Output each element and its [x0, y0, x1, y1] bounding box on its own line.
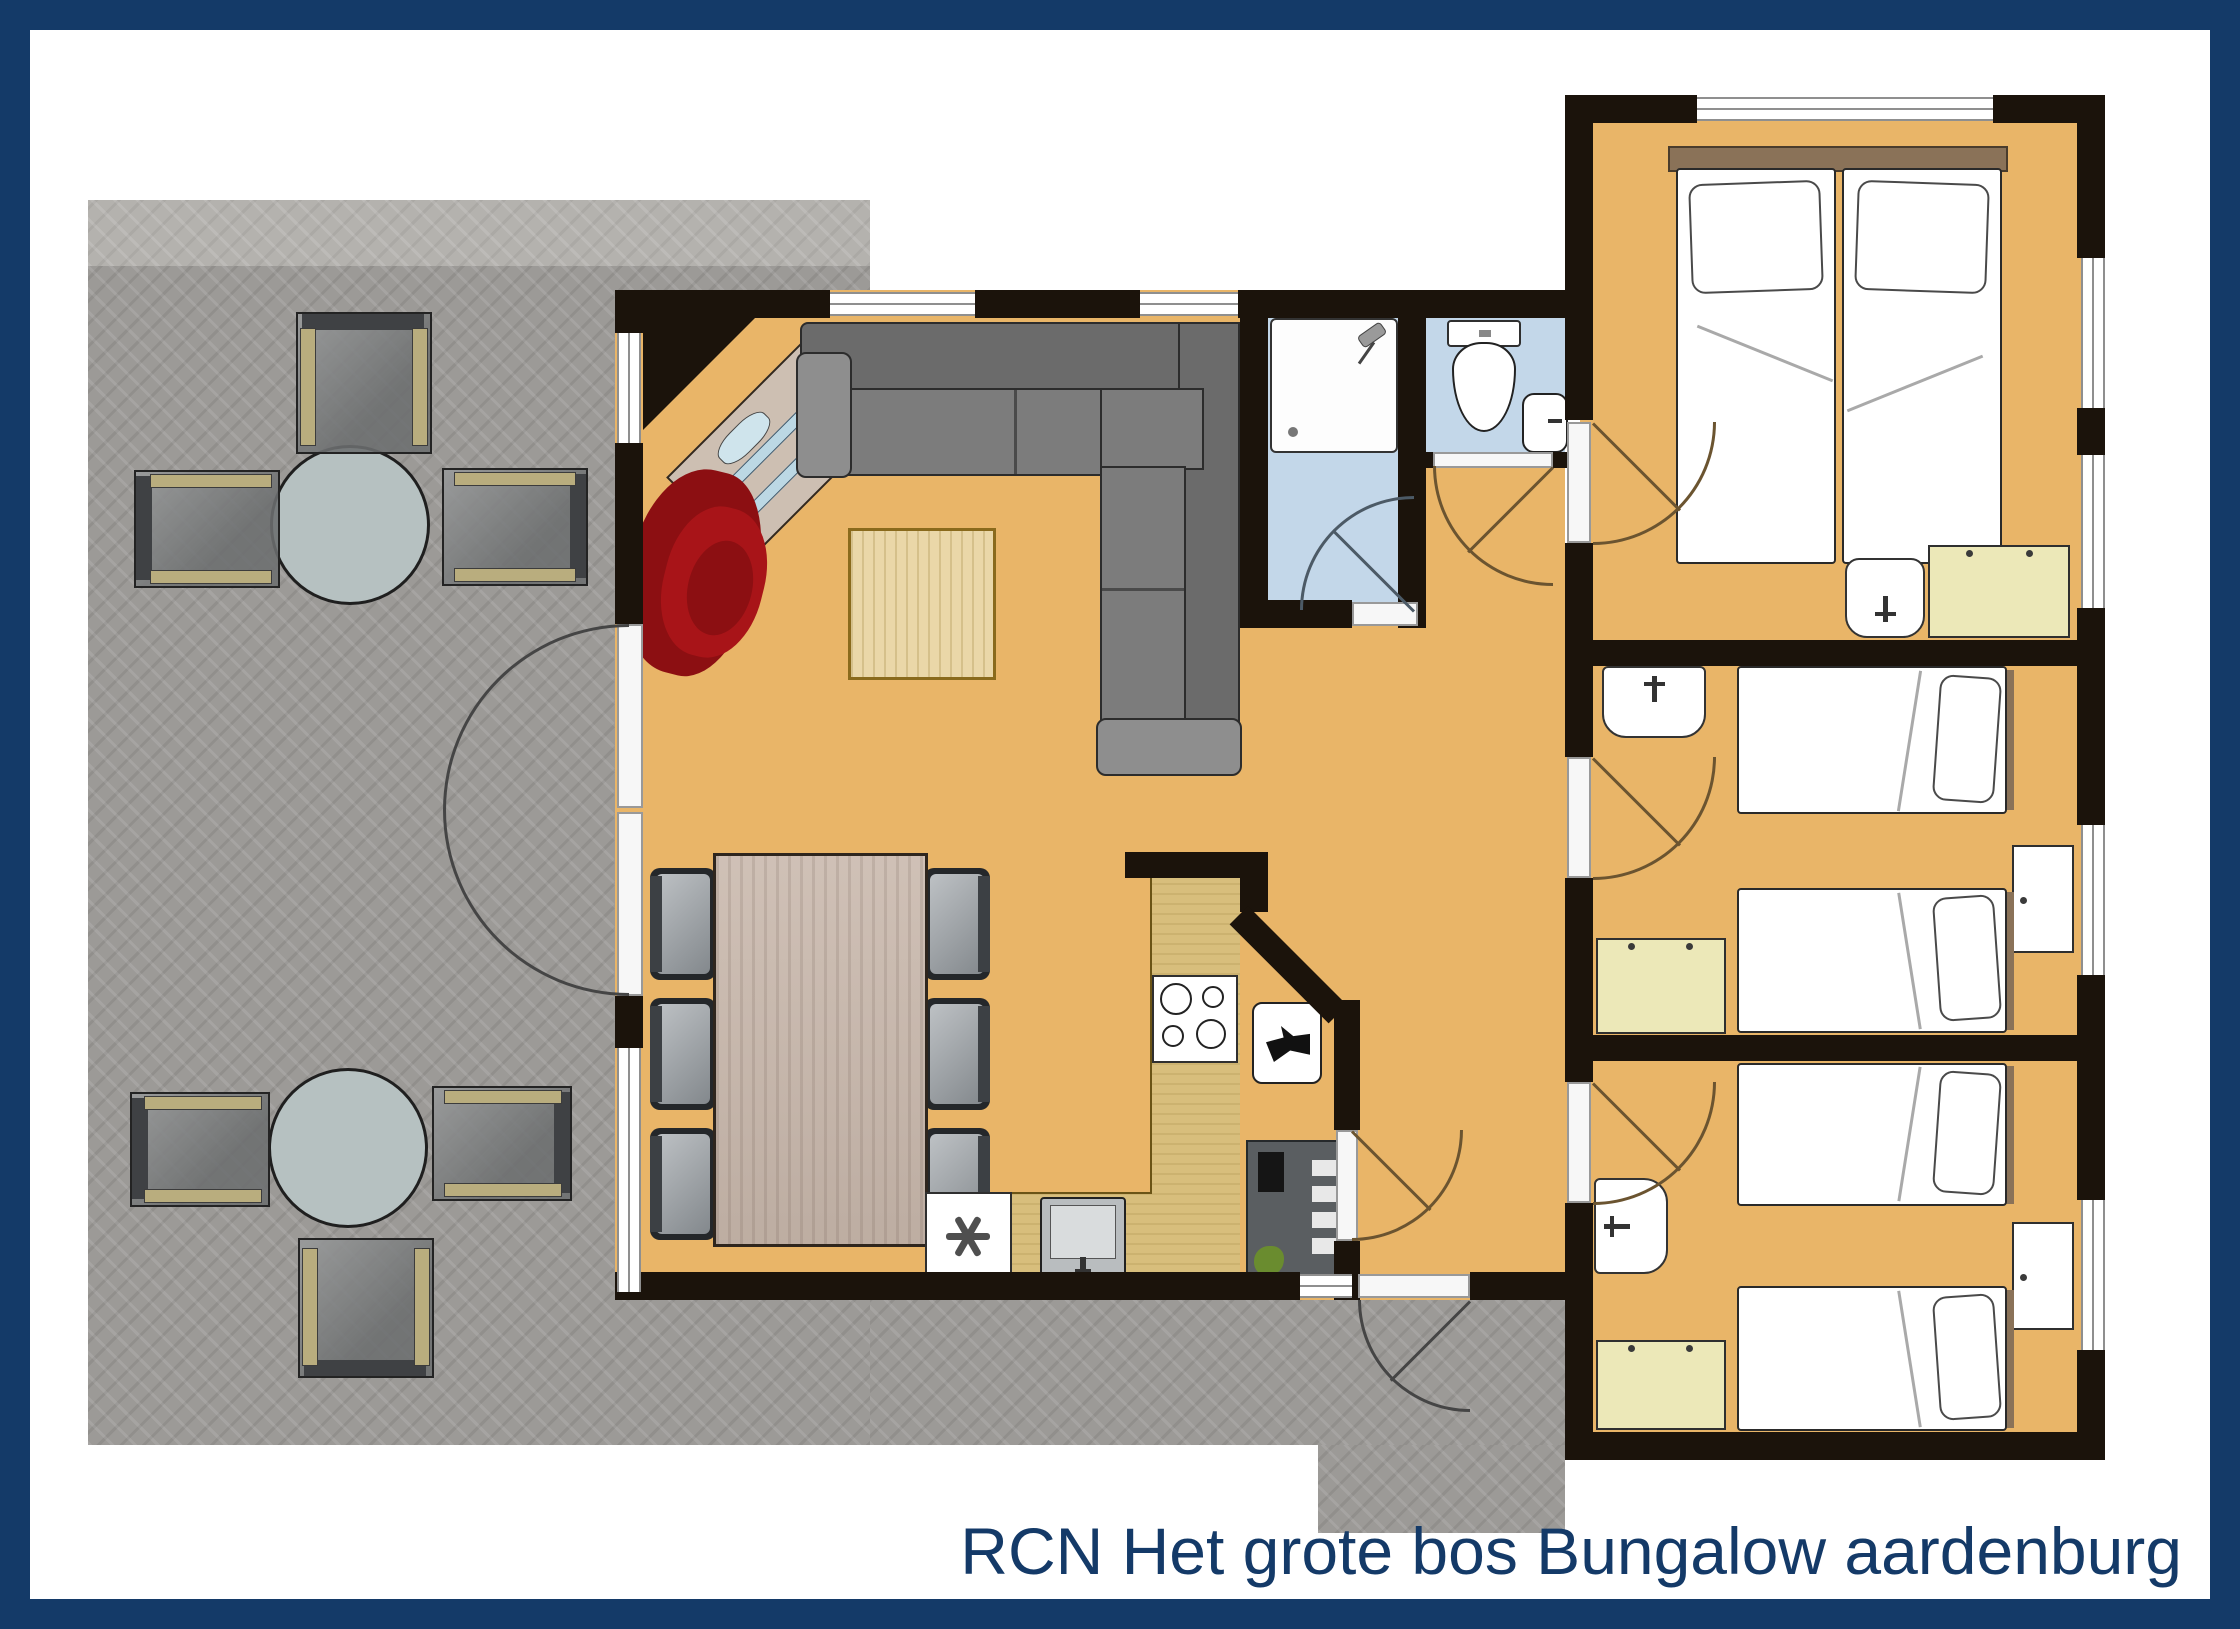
window: [1140, 292, 1238, 316]
window: [617, 333, 641, 443]
chair-arm: [144, 1189, 262, 1203]
chair-arm: [144, 1096, 262, 1110]
chair-arm: [454, 568, 576, 582]
nightstand: [2012, 845, 2074, 953]
wall-segment: [1240, 290, 1268, 628]
chair-back: [570, 474, 586, 578]
wall-segment: [1334, 1000, 1360, 1130]
wall-segment: [1565, 1432, 2105, 1460]
basin-faucet: [1644, 682, 1665, 686]
chair-arm: [150, 570, 272, 584]
nightstand-knob: [2020, 1274, 2027, 1281]
garden-chair: [130, 1092, 270, 1207]
flush-button: [1479, 330, 1491, 337]
wall-segment: [975, 290, 1140, 318]
chair-seat: [656, 1134, 710, 1234]
burner: [1202, 986, 1224, 1008]
bedroom-door: [1567, 757, 1591, 878]
wall-segment: [1565, 95, 1593, 420]
shower-tray: [1270, 318, 1398, 453]
chair-arm: [454, 472, 576, 486]
sofa-seat-divider: [1102, 588, 1184, 591]
chair-back: [554, 1092, 570, 1193]
basin-faucet: [1652, 676, 1657, 702]
dining-chair: [650, 998, 716, 1110]
plan-title: RCN Het grote bos Bungalow aardenburg: [960, 1513, 2182, 1589]
wall-segment: [1565, 543, 1593, 757]
wall-segment: [615, 443, 643, 624]
sofa-armrest-left: [796, 352, 852, 478]
wash-basin: [1845, 558, 1925, 638]
wardrobe-knob: [2026, 550, 2033, 557]
chair-back: [650, 1136, 662, 1232]
kitchen-counter-vertical: [1150, 878, 1240, 1285]
chair-back: [978, 1006, 990, 1102]
dining-table: [713, 853, 928, 1247]
basin-faucet: [1875, 612, 1896, 616]
terrace-paving-top-band: [88, 200, 870, 266]
garden-chair: [296, 312, 432, 454]
chair-seat: [930, 874, 984, 974]
basin-faucet: [1883, 596, 1888, 622]
window: [617, 1048, 641, 1292]
entrance-door: [1358, 1274, 1470, 1298]
chair-arm: [414, 1248, 430, 1366]
chair-back: [650, 876, 662, 972]
pillow: [1932, 1293, 2002, 1421]
wardrobe: [1596, 1340, 1726, 1430]
basin-faucet: [1610, 1216, 1614, 1237]
dining-chair: [924, 868, 990, 980]
wall-segment: [615, 290, 643, 333]
wardrobe-knob: [1686, 1345, 1693, 1352]
wall-segment: [2077, 408, 2105, 455]
burner: [1196, 1019, 1226, 1049]
heater-slot: [1312, 1186, 1338, 1202]
window: [1697, 97, 1993, 121]
wall-segment: [1418, 600, 1426, 628]
floor-plan-canvas: RCN Het grote bos Bungalow aardenburg: [0, 0, 2240, 1629]
window: [2081, 258, 2105, 408]
bedroom-door: [1567, 422, 1591, 543]
basin-faucet: [1548, 419, 1562, 423]
dining-chair: [924, 998, 990, 1110]
sink-basin: [1050, 1205, 1116, 1259]
wall-segment: [1553, 452, 1567, 468]
heater-slot: [1312, 1212, 1338, 1228]
wall-segment: [1238, 290, 1593, 318]
entrance-sidelight: [1300, 1274, 1352, 1298]
chair-arm: [444, 1183, 562, 1197]
sofa-seat-corner: [1100, 388, 1204, 470]
chair-arm: [444, 1090, 562, 1104]
chair-back: [132, 1098, 148, 1199]
boiler-icon: [1266, 1026, 1310, 1062]
garden-chair: [134, 470, 280, 588]
window: [2081, 1200, 2105, 1350]
window: [2081, 825, 2105, 975]
bedroom-door: [1567, 1082, 1591, 1203]
pillow: [1688, 180, 1824, 295]
chair-back: [978, 876, 990, 972]
sofa-seat-divider: [1014, 390, 1017, 474]
chair-arm: [412, 328, 428, 446]
pillow: [1854, 180, 1990, 295]
wardrobe-knob: [1686, 943, 1693, 950]
sofa-back-top: [800, 322, 1240, 392]
terrace-round-table: [270, 445, 430, 605]
nightstand: [2012, 1222, 2074, 1330]
window: [2081, 455, 2105, 608]
wall-segment: [2077, 975, 2105, 1200]
wardrobe: [1928, 545, 2070, 638]
garden-chair: [432, 1086, 572, 1201]
chair-back: [136, 476, 152, 580]
wall-segment: [2077, 608, 2105, 825]
pillow: [1932, 674, 2003, 804]
terrace-round-table: [268, 1068, 428, 1228]
wall-segment: [1593, 640, 2077, 666]
wall-segment: [1565, 1203, 1593, 1460]
pillow: [1932, 894, 2002, 1022]
wall-segment: [1240, 852, 1268, 912]
window: [830, 292, 975, 316]
chair-seat: [930, 1004, 984, 1104]
sofa-armrest-bottom: [1096, 718, 1242, 776]
wall-segment: [1593, 1035, 2077, 1061]
chair-arm: [150, 474, 272, 488]
coffee-table: [848, 528, 996, 680]
garden-chair: [298, 1238, 434, 1378]
basin-faucet: [1604, 1224, 1630, 1229]
chair-back: [302, 314, 424, 330]
nightstand-knob: [2020, 897, 2027, 904]
wall-segment: [2077, 95, 2105, 258]
garden-chair: [442, 468, 588, 586]
wardrobe-knob: [1628, 943, 1635, 950]
sofa-seat-right: [1100, 466, 1186, 722]
burner: [1162, 1025, 1184, 1047]
chair-seat: [656, 874, 710, 974]
wardrobe-knob: [1628, 1345, 1635, 1352]
dining-chair: [650, 868, 716, 980]
kitchen-sink: [1040, 1197, 1126, 1277]
freezer: [925, 1192, 1012, 1283]
dining-chair: [650, 1128, 716, 1240]
wall-segment: [615, 1272, 1300, 1300]
wash-basin: [1602, 666, 1706, 738]
wall-segment: [1565, 878, 1593, 1082]
chair-arm: [302, 1248, 318, 1366]
wall-segment: [1125, 852, 1240, 878]
hob: [1152, 975, 1238, 1063]
wardrobe: [1596, 938, 1726, 1034]
toilet-basin: [1522, 393, 1568, 453]
shower-drain: [1288, 427, 1298, 437]
wall-segment: [615, 996, 643, 1048]
chair-back: [304, 1360, 426, 1376]
wall-segment: [1426, 452, 1433, 468]
heater-slot: [1312, 1160, 1338, 1176]
chair-seat: [656, 1004, 710, 1104]
wall-segment: [615, 290, 830, 318]
burner: [1160, 983, 1192, 1015]
chair-back: [650, 1006, 662, 1102]
pillow: [1932, 1070, 2002, 1196]
chair-arm: [300, 328, 316, 446]
heater-panel: [1258, 1152, 1284, 1192]
boiler-cabinet: [1252, 1002, 1322, 1084]
wardrobe-knob: [1966, 550, 1973, 557]
